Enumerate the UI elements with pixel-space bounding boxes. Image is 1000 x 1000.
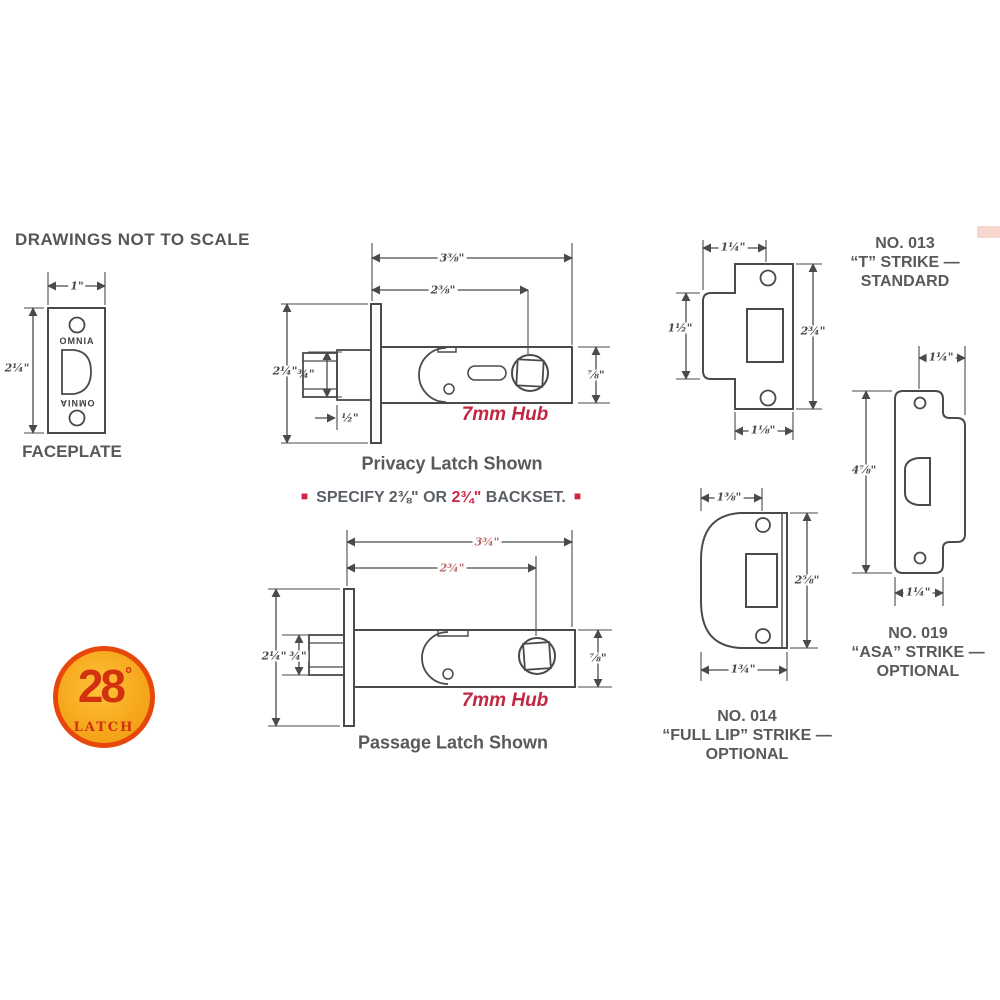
brand-text: OMNIA	[60, 336, 95, 346]
specify-alt-backset: 2¾"	[452, 489, 482, 506]
privacy-offset-dim: ½"	[339, 413, 360, 424]
strike019-label: NO. 019 “ASA” STRIKE — OPTIONAL	[851, 624, 984, 681]
passage-latch-drawing	[268, 530, 612, 726]
specify-text-2: BACKSET.	[486, 489, 566, 506]
red-square-icon: ■	[574, 489, 581, 503]
strike013-top-dim: 1¼"	[719, 242, 748, 253]
pin-hole	[443, 669, 453, 679]
strike014-bottom-dim: 1¾"	[729, 664, 758, 675]
faceplate-edge	[344, 589, 354, 726]
privacy-hub-label: 7mm Hub	[462, 404, 549, 426]
screw-hole	[756, 629, 770, 643]
corner-artifact	[977, 226, 1000, 238]
screw-hole	[761, 391, 776, 406]
privacy-backset-dim: 2⅜"	[429, 285, 458, 296]
latch-opening	[746, 554, 777, 607]
strike019-grade: OPTIONAL	[851, 662, 984, 681]
faceplate-label: FACEPLATE	[22, 442, 122, 462]
passage-bolt-dim: ¾"	[287, 651, 308, 662]
drawings-note: DRAWINGS NOT TO SCALE	[15, 230, 250, 250]
privacy-latch-drawing	[281, 243, 610, 443]
passage-case-dim: ⅞"	[587, 653, 608, 664]
passage-overall-dim: 3¾"	[473, 537, 502, 548]
strike013-bottom-dim: 1⅛"	[749, 425, 778, 436]
strike019-name: “ASA” STRIKE —	[851, 643, 984, 662]
latch-opening	[747, 309, 783, 362]
pin-hole	[444, 384, 454, 394]
screw-hole	[70, 318, 85, 333]
strike019-no: NO. 019	[851, 624, 984, 643]
screw-hole	[70, 411, 85, 426]
hub-square	[523, 642, 551, 670]
latch-bolt-opening	[62, 350, 91, 394]
strike014-name: “FULL LIP” STRIKE —	[662, 726, 831, 745]
strike013-label: NO. 013 “T” STRIKE — STANDARD	[850, 234, 959, 291]
strike-outline	[701, 513, 787, 648]
passage-hub-label: 7mm Hub	[462, 690, 549, 712]
strike013-right-dim: 2¾"	[799, 326, 828, 337]
strike013-grade: STANDARD	[850, 272, 959, 291]
red-square-icon: ■	[301, 489, 308, 503]
t-strike-drawing	[676, 240, 822, 440]
privacy-case-dim: ⅞"	[585, 370, 606, 381]
faceplate-width-dim: 1"	[68, 281, 85, 292]
faceplate-height-dim: 2¼"	[3, 363, 32, 374]
strike014-label: NO. 014 “FULL LIP” STRIKE — OPTIONAL	[662, 707, 831, 764]
logo-word: LATCH	[74, 720, 135, 735]
strike013-left-dim: 1½"	[666, 323, 695, 334]
faceplate-edge	[371, 304, 381, 443]
strike019-top-dim: 1¼"	[927, 352, 956, 363]
backset-note: ■SPECIFY 2⅜" OR 2¾" BACKSET.■	[293, 489, 589, 507]
latch-28-logo: 28° LATCH	[53, 646, 155, 748]
logo-number: 28	[78, 660, 123, 712]
hub-square	[516, 359, 543, 386]
deadlatch-arc	[419, 348, 446, 402]
passage-backset-dim: 2¾"	[438, 563, 467, 574]
degree-symbol: °	[125, 664, 132, 684]
strike013-no: NO. 013	[850, 234, 959, 253]
collar	[337, 350, 371, 400]
privacy-overall-dim: 3⅜"	[438, 253, 467, 264]
strike014-grade: OPTIONAL	[662, 745, 831, 764]
screw-hole	[915, 553, 926, 564]
slot	[468, 366, 506, 380]
passage-caption: Passage Latch Shown	[358, 733, 548, 754]
strike014-no: NO. 014	[662, 707, 831, 726]
faceplate-drawing	[24, 272, 105, 433]
privacy-bolt-dim: ¾"	[295, 369, 316, 380]
strike019-bottom-dim: 1¼"	[904, 587, 933, 598]
strike014-top-dim: 1⅜"	[715, 492, 744, 503]
privacy-caption: Privacy Latch Shown	[361, 454, 542, 475]
strike019-left-dim: 4⅞"	[850, 465, 879, 476]
latch-opening	[905, 458, 930, 505]
brand-text-flipped: OMNIA	[60, 398, 95, 408]
logo-degrees: 28°	[78, 663, 130, 709]
latch-bolt	[309, 635, 344, 675]
screw-hole	[761, 271, 776, 286]
passage-plate-dim: 2¼"	[260, 651, 289, 662]
strike013-name: “T” STRIKE —	[850, 253, 959, 272]
specify-text: SPECIFY 2⅜" OR	[316, 489, 447, 506]
faceplate-outline	[48, 308, 105, 433]
screw-hole	[915, 398, 926, 409]
screw-hole	[756, 518, 770, 532]
spec-sheet: DRAWINGS NOT TO SCALE 1" 2¼" OMNIA OMNIA…	[0, 0, 1000, 1000]
strike014-right-dim: 2⅝"	[793, 575, 822, 586]
